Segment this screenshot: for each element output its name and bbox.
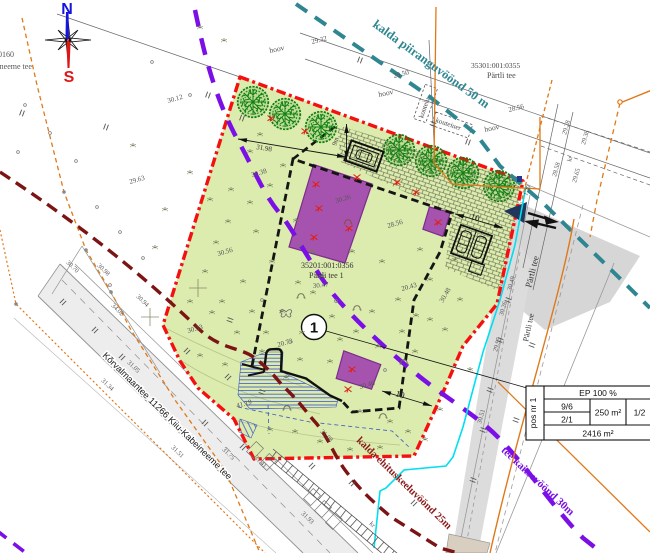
- svg-text:35301:001:0355: 35301:001:0355: [471, 61, 520, 70]
- svg-text:Pärtli tee: Pärtli tee: [487, 71, 516, 80]
- svg-text:9/6: 9/6: [561, 402, 573, 412]
- svg-text:1: 1: [310, 320, 318, 337]
- svg-text:250 m²: 250 m²: [595, 408, 622, 418]
- svg-text:30160: 30160: [0, 50, 14, 59]
- svg-text:2/1: 2/1: [561, 415, 573, 425]
- svg-text:35201:001:0356: 35201:001:0356: [301, 261, 353, 270]
- svg-text:S: S: [64, 69, 75, 86]
- svg-text:EP 100 %: EP 100 %: [579, 388, 617, 398]
- svg-text:rneeme tee: rneeme tee: [0, 62, 32, 71]
- svg-text:pos nr 1: pos nr 1: [528, 397, 538, 428]
- svg-text:2416 m²: 2416 m²: [582, 429, 613, 439]
- svg-text:N: N: [61, 1, 73, 18]
- svg-text:Pärtli tee 1: Pärtli tee 1: [309, 271, 344, 280]
- svg-text:1/2: 1/2: [634, 408, 646, 418]
- svg-text:30.47: 30.47: [312, 281, 329, 290]
